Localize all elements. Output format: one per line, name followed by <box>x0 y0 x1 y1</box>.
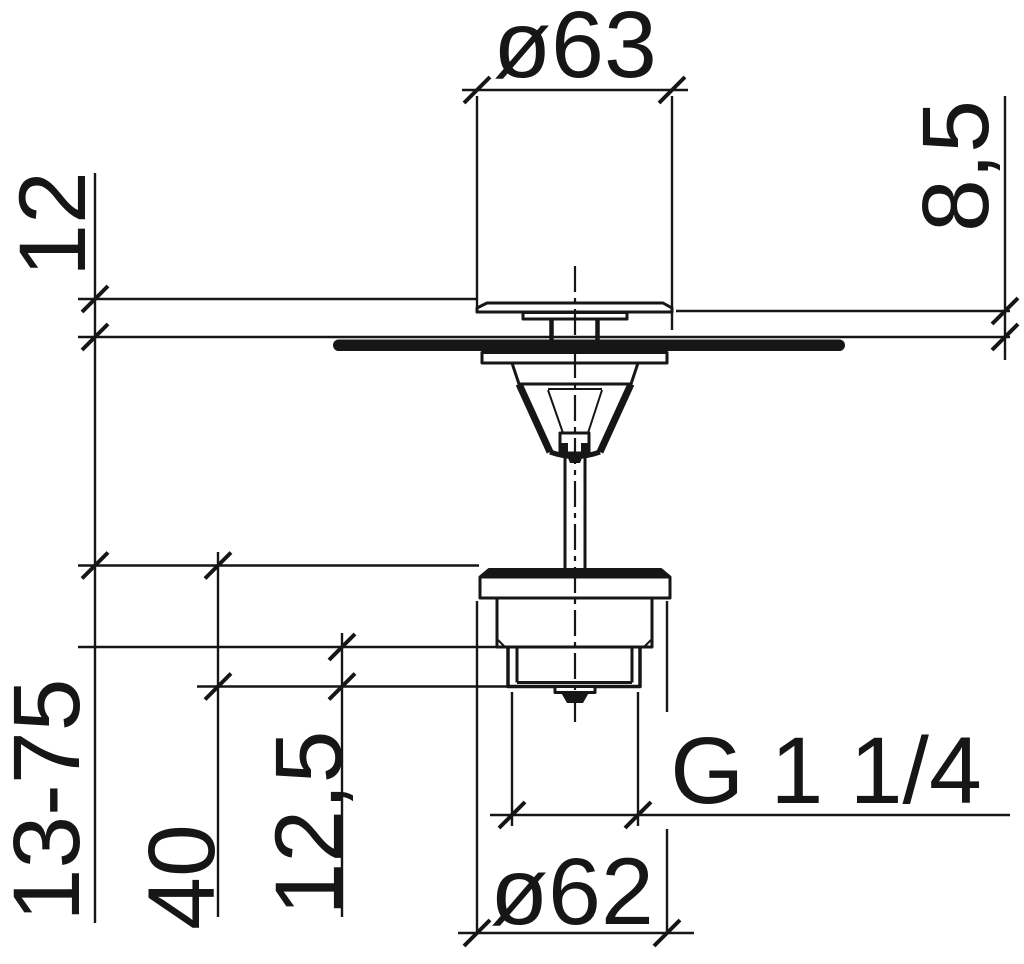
dimension-label-body-height: 40 <box>129 824 235 930</box>
dimension-label-lift-height: 12 <box>0 171 106 277</box>
dimension-labels: ø63 8,5 12 13-75 40 12,5 G 1 1/4 ø62 <box>0 0 1009 945</box>
dimension-label-cap-height: 8,5 <box>903 100 1009 232</box>
drain-fitting-drawing <box>333 266 845 728</box>
technical-drawing-canvas: ø63 8,5 12 13-75 40 12,5 G 1 1/4 ø62 <box>0 0 1024 964</box>
valve-seal-right <box>581 443 589 453</box>
dimension-label-body-diameter: ø62 <box>490 839 654 945</box>
tail-cone-right <box>600 384 631 452</box>
inner-cone-left <box>548 390 563 433</box>
dimension-label-clamping-range: 13-75 <box>0 679 100 922</box>
mounting-deck <box>333 340 845 352</box>
dimension-label-thread-length: 12,5 <box>256 731 362 916</box>
dimension-label-thread-size: G 1 1/4 <box>670 718 982 824</box>
dimension-label-cap-diameter: ø63 <box>493 0 657 98</box>
valve-seal-left <box>560 443 568 453</box>
inner-cone-right <box>588 390 602 433</box>
tail-cone-left <box>519 384 550 452</box>
